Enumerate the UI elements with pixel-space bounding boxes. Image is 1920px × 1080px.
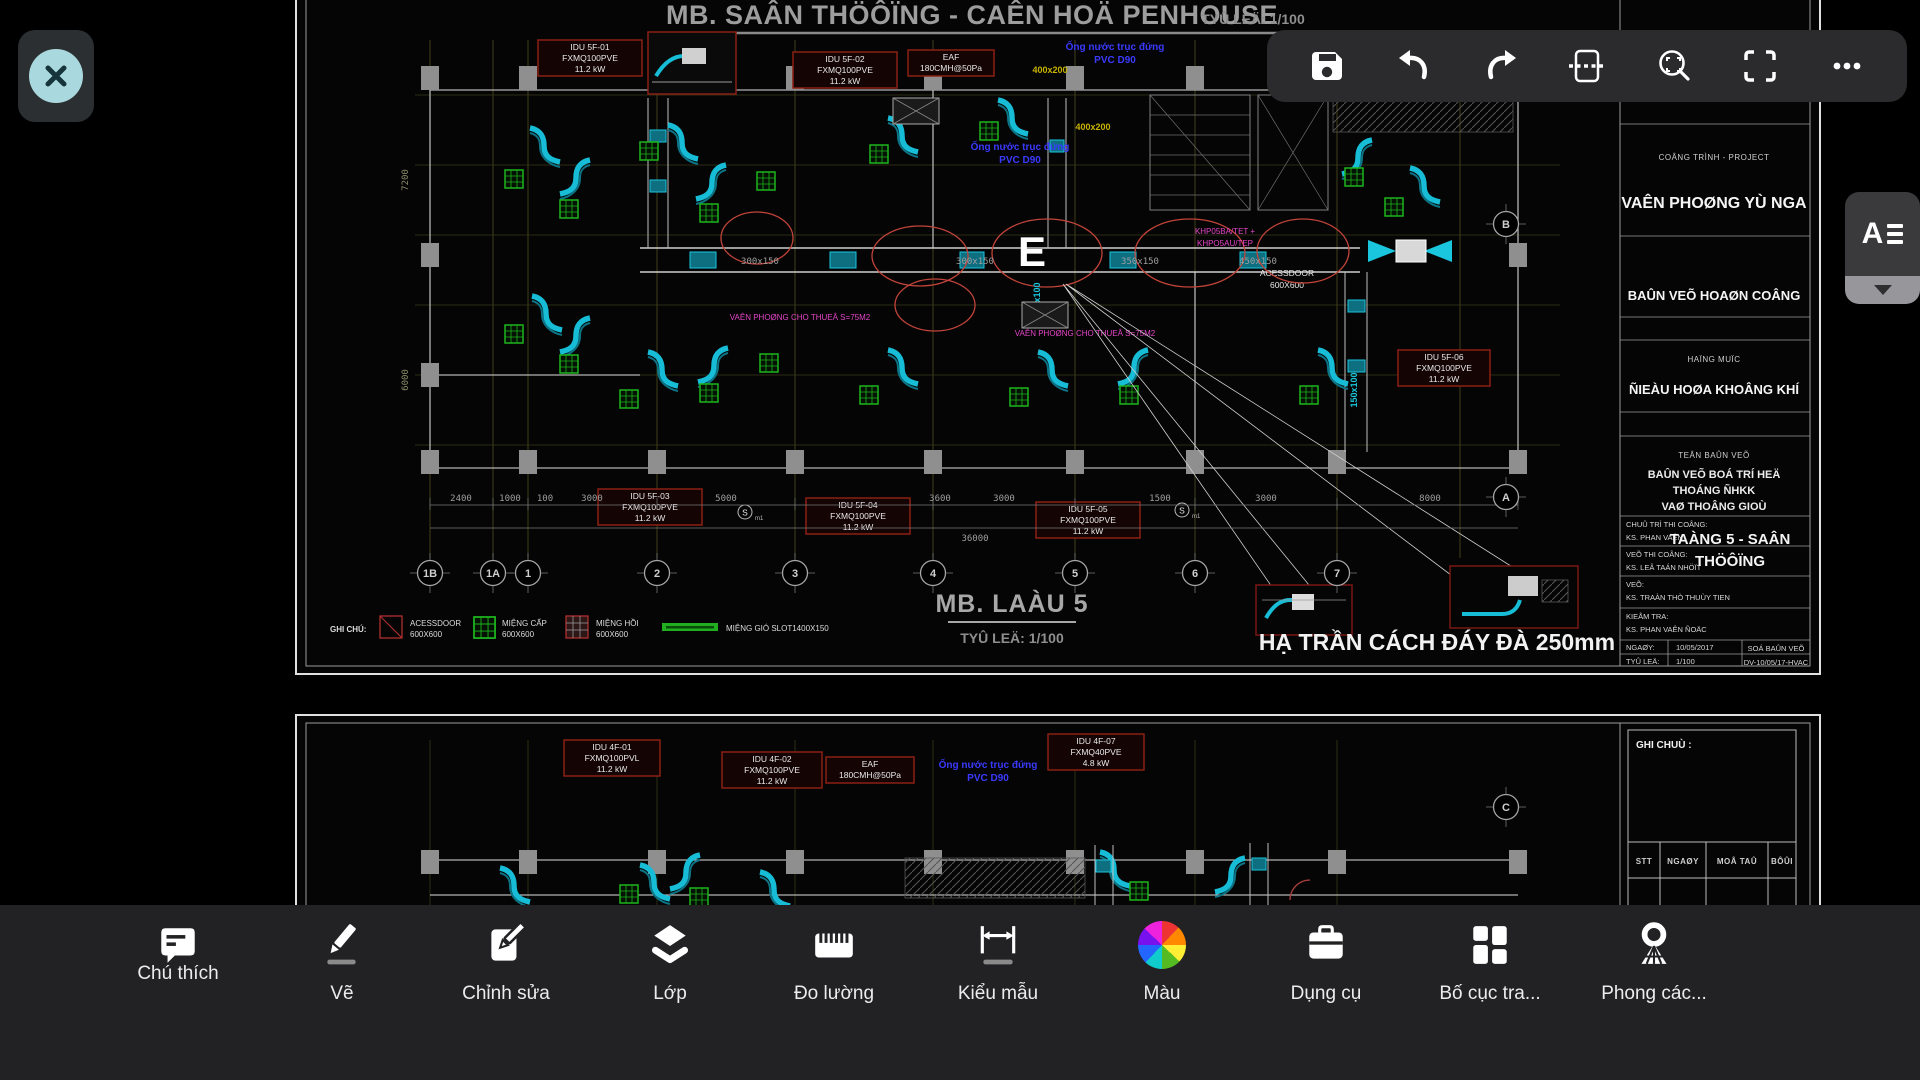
pipe-note-s2: Ống nước trục đứng xyxy=(939,757,1038,771)
section-button[interactable] xyxy=(1561,40,1613,92)
svg-text:IDU 5F-01: IDU 5F-01 xyxy=(570,42,609,52)
text-lines-icon xyxy=(1887,224,1903,244)
tool-label: Kiểu mẫu xyxy=(958,983,1038,1005)
dimension-style-icon xyxy=(970,917,1026,973)
tool-measure[interactable]: Đo lường xyxy=(752,917,916,1005)
svg-text:FXMQ100PVE: FXMQ100PVE xyxy=(562,53,618,63)
close-icon xyxy=(29,49,83,103)
svg-text:GHI CHUÙ :: GHI CHUÙ : xyxy=(1636,738,1692,751)
tool-dimension-style[interactable]: Kiểu mẫu xyxy=(916,917,1080,1005)
fullscreen-icon xyxy=(1740,46,1780,86)
detail-box-2 xyxy=(1450,566,1578,628)
svg-text:10/05/2017: 10/05/2017 xyxy=(1676,643,1714,652)
svg-text:7: 7 xyxy=(1334,568,1340,580)
svg-text:FXMQ100PVE: FXMQ100PVE xyxy=(744,765,800,775)
svg-text:CHUÛ TRÌ THI COÂNG:: CHUÛ TRÌ THI COÂNG: xyxy=(1626,520,1707,529)
svg-text:SOÁ BAÛN VEÕ: SOÁ BAÛN VEÕ xyxy=(1748,644,1805,653)
svg-text:1/100: 1/100 xyxy=(1676,657,1695,666)
svg-text:FXMQ100PVE: FXMQ100PVE xyxy=(817,65,873,75)
plan-scale: TYÛ LEÄ: 1/100 xyxy=(960,629,1064,646)
svg-text:VEÕ THI COÂNG:: VEÕ THI COÂNG: xyxy=(1626,550,1688,559)
chevron-down-icon xyxy=(1874,285,1892,295)
svg-text:FXMQ100PVE: FXMQ100PVE xyxy=(830,511,886,521)
edit-note-icon xyxy=(478,917,534,973)
tool-color[interactable]: Màu xyxy=(1080,917,1244,1005)
tool-annotate[interactable]: Chú thích xyxy=(96,917,260,1005)
svg-text:11.2 kW: 11.2 kW xyxy=(575,64,606,74)
save-button[interactable] xyxy=(1302,40,1354,92)
svg-text:IDU 5F-02: IDU 5F-02 xyxy=(825,54,864,64)
svg-text:IDU 4F-01: IDU 4F-01 xyxy=(592,742,631,752)
zoom-area-button[interactable] xyxy=(1648,40,1700,92)
svg-text:ÑIEÀU HOØA KHOÂNG KHÍ: ÑIEÀU HOØA KHOÂNG KHÍ xyxy=(1629,382,1799,397)
text-style-panel-button[interactable]: A xyxy=(1845,192,1920,304)
svg-text:2400: 2400 xyxy=(450,494,472,504)
cad-canvas[interactable]: MB. SAÂN THÖÔÏNG - CAÊN HOÄ PENHOUSE TYÛ… xyxy=(0,0,1920,905)
svg-text:GHI CHÚ:: GHI CHÚ: xyxy=(330,625,366,634)
tool-label: Chú thích xyxy=(137,963,218,985)
svg-text:FXMQ100PVL: FXMQ100PVL xyxy=(585,753,640,763)
tool-page-layout[interactable]: Bố cục tra... xyxy=(1408,917,1572,1005)
duct-dim-vertical: 150x100 xyxy=(1349,372,1359,407)
svg-text:11.2 kW: 11.2 kW xyxy=(843,522,874,532)
svg-text:FXMQ100PVE: FXMQ100PVE xyxy=(1416,363,1472,373)
svg-text:3000: 3000 xyxy=(1255,494,1277,504)
svg-text:IDU 5F-06: IDU 5F-06 xyxy=(1424,352,1463,362)
svg-text:100: 100 xyxy=(537,494,553,504)
svg-text:36000: 36000 xyxy=(961,534,988,544)
svg-text:KS. LEÂ TAÁN NHÖÏT: KS. LEÂ TAÁN NHÖÏT xyxy=(1626,563,1702,572)
eaf-unit xyxy=(1022,302,1068,328)
magenta-note: VAÊN PHOØNG CHO THUEÂ S=75M2 xyxy=(730,313,871,322)
svg-text:11.2 kW: 11.2 kW xyxy=(597,764,628,774)
more-button[interactable] xyxy=(1821,40,1873,92)
svg-text:1: 1 xyxy=(525,568,531,580)
svg-text:2: 2 xyxy=(654,568,660,580)
svg-text:1000: 1000 xyxy=(499,494,521,504)
accessdoor-label-1: ACESSDOOR xyxy=(1260,268,1314,278)
layout-icon xyxy=(1462,917,1518,973)
svg-text:VAØ THOÂNG GIOÙ: VAØ THOÂNG GIOÙ xyxy=(1662,500,1767,513)
svg-text:NGAØY:: NGAØY: xyxy=(1626,643,1655,652)
magenta-note: KHP05BA/TET + xyxy=(1195,227,1255,236)
svg-text:IDU 4F-07: IDU 4F-07 xyxy=(1076,736,1115,746)
svg-text:1500: 1500 xyxy=(1149,494,1171,504)
svg-text:TEÂN BAÛN VEÕ: TEÂN BAÛN VEÕ xyxy=(1678,451,1749,460)
svg-text:HAÏNG MUÏC: HAÏNG MUÏC xyxy=(1688,355,1741,364)
duct-dim: 450x150 xyxy=(1239,257,1277,267)
color-wheel-icon xyxy=(1134,917,1190,973)
svg-text:IDU 5F-03: IDU 5F-03 xyxy=(630,491,669,501)
plan-title: MB. LAÀU 5 xyxy=(935,589,1088,618)
svg-text:4: 4 xyxy=(930,568,937,580)
svg-text:MIỆNG CẤP: MIỆNG CẤP xyxy=(502,618,547,628)
svg-text:600X600: 600X600 xyxy=(410,630,443,639)
svg-text:STT: STT xyxy=(1636,857,1653,866)
svg-text:B: B xyxy=(1502,219,1510,231)
tool-label: Vẽ xyxy=(330,983,353,1005)
sheet-2: IDU 4F-01 FXMQ100PVL 11.2 kW IDU 4F-02 F… xyxy=(296,715,1820,905)
duct-dim: 300x150 xyxy=(956,257,994,267)
svg-text:A: A xyxy=(1502,492,1510,504)
tool-utilities[interactable]: Dụng cụ xyxy=(1244,917,1408,1005)
svg-text:3000: 3000 xyxy=(581,494,603,504)
pipe-note: Ống nước trục đứng xyxy=(1066,39,1165,53)
fullscreen-button[interactable] xyxy=(1734,40,1786,92)
text-style-icon: A xyxy=(1862,219,1884,249)
svg-text:NGAØY: NGAØY xyxy=(1667,857,1699,866)
tool-label: Đo lường xyxy=(794,983,874,1005)
svg-text:TAÀNG 5 - SAÂN: TAÀNG 5 - SAÂN xyxy=(1670,530,1791,548)
style-badge-icon xyxy=(1626,917,1682,973)
zoom-area-icon xyxy=(1654,46,1694,86)
svg-text:COÂNG TRÌNH - PROJECT: COÂNG TRÌNH - PROJECT xyxy=(1659,153,1770,162)
svg-text:8000: 8000 xyxy=(1419,494,1441,504)
svg-text:m1: m1 xyxy=(1192,514,1201,520)
redo-icon xyxy=(1481,46,1521,86)
undo-icon xyxy=(1394,46,1434,86)
svg-text:3600: 3600 xyxy=(929,494,951,504)
tool-label: Phong các... xyxy=(1601,983,1707,1005)
svg-text:IDU 5F-05: IDU 5F-05 xyxy=(1068,504,1107,514)
close-button[interactable] xyxy=(18,30,94,122)
svg-text:THÖÔÏNG: THÖÔÏNG xyxy=(1695,552,1765,570)
svg-text:180CMH@50Pa: 180CMH@50Pa xyxy=(920,63,982,73)
sheet1-title-scale: TYÛ LEÄ: 1/100 xyxy=(1201,10,1305,27)
tool-layers[interactable]: Lớp xyxy=(588,917,752,1005)
svg-text:VAÊN PHOØNG YÙ NGA: VAÊN PHOØNG YÙ NGA xyxy=(1621,193,1807,212)
svg-text:MOÂ TAÛ: MOÂ TAÛ xyxy=(1717,857,1757,866)
yellow-dim: 400x200 xyxy=(1075,122,1110,132)
pipe-note-s2: PVC D90 xyxy=(967,773,1009,784)
svg-text:3: 3 xyxy=(792,568,798,580)
svg-text:600X600: 600X600 xyxy=(502,630,535,639)
duct-dim: 350x150 xyxy=(1121,257,1159,267)
save-icon xyxy=(1308,46,1348,86)
svg-text:VEÕ:: VEÕ: xyxy=(1626,580,1644,589)
ruler-icon xyxy=(806,917,862,973)
sheet1-title: MB. SAÂN THÖÔÏNG - CAÊN HOÄ PENHOUSE xyxy=(666,0,1278,30)
pipe-note: Ống nước trục đứng xyxy=(971,139,1070,153)
svg-text:4.8 kW: 4.8 kW xyxy=(1083,758,1109,768)
svg-text:FXMQ40PVE: FXMQ40PVE xyxy=(1070,747,1121,757)
duct-dim: 300x150 xyxy=(741,257,779,267)
layers-icon xyxy=(642,917,698,973)
detail-box-1 xyxy=(1256,585,1352,635)
svg-text:6000: 6000 xyxy=(401,369,411,391)
pencil-icon xyxy=(314,917,370,973)
tool-edit[interactable]: Chỉnh sửa xyxy=(424,917,588,1005)
pipe-note: PVC D90 xyxy=(999,155,1041,166)
svg-text:FXMQ100PVE: FXMQ100PVE xyxy=(622,502,678,512)
svg-text:1A: 1A xyxy=(486,568,500,580)
svg-text:KIEÅM TRA:: KIEÅM TRA: xyxy=(1626,612,1668,621)
svg-text:m1: m1 xyxy=(755,516,764,522)
svg-text:MIỆNG HỒI: MIỆNG HỒI xyxy=(596,618,639,628)
svg-text:EAF: EAF xyxy=(862,759,879,769)
tool-draw[interactable]: Vẽ xyxy=(260,917,424,1005)
svg-text:EAF: EAF xyxy=(943,52,960,62)
svg-text:FXMQ100PVE: FXMQ100PVE xyxy=(1060,515,1116,525)
svg-text:3000: 3000 xyxy=(993,494,1015,504)
pipe-note: PVC D90 xyxy=(1094,55,1136,66)
svg-text:S: S xyxy=(1179,506,1185,516)
svg-text:BAÛN VEÕ HOAØN COÂNG: BAÛN VEÕ HOAØN COÂNG xyxy=(1628,288,1801,303)
svg-text:5: 5 xyxy=(1072,568,1078,580)
tool-label: Chỉnh sửa xyxy=(462,983,550,1005)
svg-text:11.2 kW: 11.2 kW xyxy=(635,513,666,523)
svg-text:7200: 7200 xyxy=(401,169,411,191)
svg-text:KS. PHAN VAÊN ÑOÄC: KS. PHAN VAÊN ÑOÄC xyxy=(1626,625,1707,634)
magenta-note: KHPO5AU/TEP xyxy=(1197,239,1253,248)
svg-text:IDU 4F-02: IDU 4F-02 xyxy=(752,754,791,764)
zone-marker-e: E xyxy=(1018,228,1046,275)
svg-text:MIỆNG GIÓ SLOT1400X150: MIỆNG GIÓ SLOT1400X150 xyxy=(726,624,829,633)
svg-text:BAÛN VEÕ BOÁ TRÍ HEÄ: BAÛN VEÕ BOÁ TRÍ HEÄ xyxy=(1648,468,1781,481)
svg-text:TYÛ LEÄ:: TYÛ LEÄ: xyxy=(1626,657,1659,666)
toolbox-icon xyxy=(1298,917,1354,973)
svg-text:11.2 kW: 11.2 kW xyxy=(757,776,788,786)
more-icon xyxy=(1827,46,1867,86)
ceiling-note: HẠ TRẦN CÁCH ĐÁY ĐÀ 250mm xyxy=(1259,628,1615,655)
eaf-unit xyxy=(893,98,939,124)
undo-button[interactable] xyxy=(1388,40,1440,92)
tool-label: Lớp xyxy=(653,983,687,1005)
svg-text:C: C xyxy=(1502,802,1510,814)
svg-text:600X600: 600X600 xyxy=(596,630,629,639)
svg-text:BÔÛI: BÔÛI xyxy=(1771,857,1793,866)
svg-text:11.2 kW: 11.2 kW xyxy=(1073,526,1104,536)
tool-style[interactable]: Phong các... xyxy=(1572,917,1736,1005)
app-stage: MB. SAÂN THÖÔÏNG - CAÊN HOÄ PENHOUSE TYÛ… xyxy=(0,0,1920,1080)
collapse-handle[interactable] xyxy=(1845,276,1920,304)
top-toolbar xyxy=(1267,30,1907,102)
svg-text:DV-10/05/17-HVAC: DV-10/05/17-HVAC xyxy=(1744,658,1809,667)
tool-label: Dụng cụ xyxy=(1291,983,1362,1005)
svg-text:5000: 5000 xyxy=(715,494,737,504)
svg-text:11.2 kW: 11.2 kW xyxy=(1429,374,1460,384)
bottom-toolbar: Chú thích Vẽ xyxy=(0,905,1920,1080)
svg-text:ACESSDOOR: ACESSDOOR xyxy=(410,619,461,628)
section-icon xyxy=(1567,46,1607,86)
svg-text:KS. TRAÀN THÒ THUÙY TIEN: KS. TRAÀN THÒ THUÙY TIEN xyxy=(1626,593,1730,602)
svg-text:11.2 kW: 11.2 kW xyxy=(830,76,861,86)
tool-label: Màu xyxy=(1144,983,1181,1005)
magenta-note: VAÊN PHOØNG CHO THUEÂ S=75M2 xyxy=(1015,329,1156,338)
svg-text:1B: 1B xyxy=(423,568,437,580)
svg-text:S: S xyxy=(742,508,748,518)
tool-label: Bố cục tra... xyxy=(1439,983,1540,1005)
yellow-dim: 400x200 xyxy=(1032,65,1067,75)
svg-text:THOÁNG ÑHKK: THOÁNG ÑHKK xyxy=(1673,484,1756,497)
svg-text:180CMH@50Pa: 180CMH@50Pa xyxy=(839,770,901,780)
redo-button[interactable] xyxy=(1475,40,1527,92)
svg-text:6: 6 xyxy=(1192,568,1198,580)
